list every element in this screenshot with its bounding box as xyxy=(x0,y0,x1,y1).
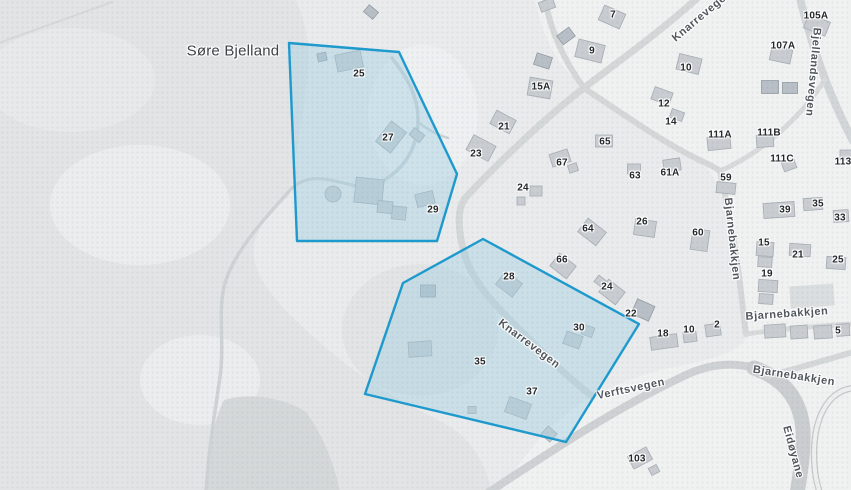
building xyxy=(783,83,798,94)
building xyxy=(789,283,834,308)
building xyxy=(631,299,655,321)
building xyxy=(840,150,851,160)
building xyxy=(764,324,786,338)
building xyxy=(707,135,731,150)
building xyxy=(490,110,516,134)
building xyxy=(683,331,697,343)
building xyxy=(650,334,679,351)
building xyxy=(762,81,779,94)
building xyxy=(364,5,379,20)
map-svg xyxy=(0,0,851,490)
building xyxy=(690,228,710,251)
building xyxy=(826,256,846,269)
building xyxy=(527,77,553,99)
building xyxy=(534,53,553,69)
building xyxy=(633,219,656,238)
building xyxy=(628,164,641,174)
building xyxy=(833,209,849,222)
building xyxy=(596,135,613,147)
building xyxy=(530,186,542,196)
terrain-region xyxy=(50,145,230,265)
building xyxy=(836,324,850,337)
building xyxy=(517,197,525,205)
building xyxy=(789,243,811,256)
terrain-layer xyxy=(0,0,851,490)
building xyxy=(790,325,808,339)
building xyxy=(758,257,773,268)
building xyxy=(756,241,774,256)
building xyxy=(716,182,736,195)
building xyxy=(705,323,722,337)
building xyxy=(763,201,795,218)
building xyxy=(756,134,774,147)
map-canvas[interactable]: 2527297915A212324101214105A107A111A111B1… xyxy=(0,0,851,490)
building xyxy=(814,325,833,339)
building xyxy=(567,163,578,173)
building xyxy=(758,279,778,292)
building xyxy=(578,218,607,246)
building xyxy=(549,149,571,167)
building xyxy=(803,197,823,210)
building xyxy=(550,253,576,279)
building xyxy=(663,158,682,172)
building xyxy=(759,294,774,305)
